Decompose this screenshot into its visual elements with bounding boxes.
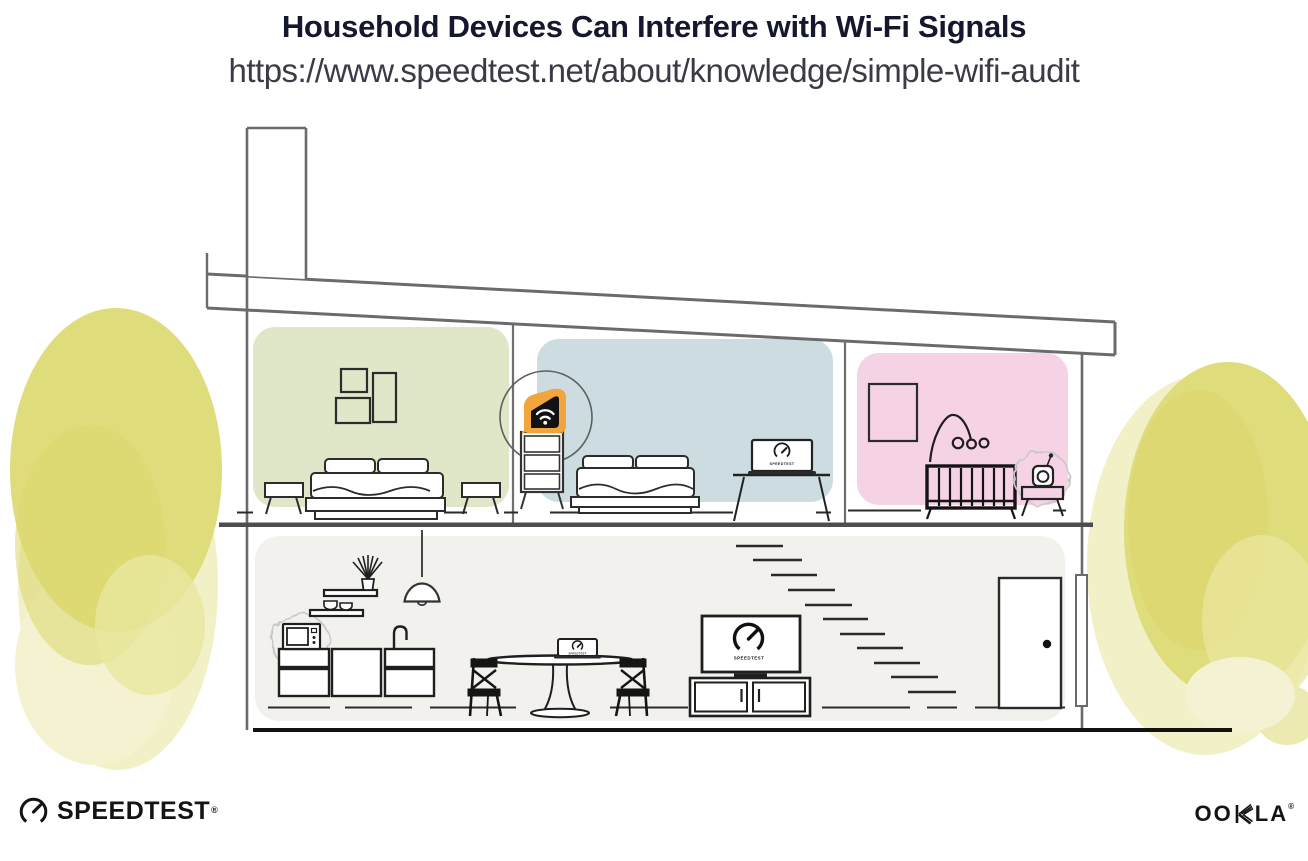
ookla-wordmark-right: LA bbox=[1255, 802, 1288, 826]
speedtest-logo: SPEEDTEST® bbox=[18, 796, 218, 827]
speedtest-gauge-icon bbox=[18, 796, 49, 827]
chimney bbox=[247, 128, 306, 279]
doorknob bbox=[1043, 640, 1051, 648]
microwave-icon bbox=[283, 624, 320, 649]
left-tree bbox=[10, 308, 222, 770]
speedtest-wordmark: SPEEDTEST bbox=[57, 797, 210, 825]
svg-text:SPEEDTEST: SPEEDTEST bbox=[770, 462, 795, 466]
ookla-logo: OO LA ® bbox=[1195, 802, 1294, 826]
right-tree bbox=[1087, 362, 1308, 755]
master-bed bbox=[306, 459, 445, 519]
kitchen-cabinets bbox=[279, 649, 434, 696]
ookla-k-icon bbox=[1234, 802, 1254, 826]
house-cross-section-illustration: SPEEDTEST bbox=[0, 0, 1308, 861]
floor-slab bbox=[219, 523, 1093, 528]
tv-icon: SPEEDTEST bbox=[702, 616, 800, 677]
laptop-icon: SPEEDTEST bbox=[554, 639, 601, 659]
wifi-router-icon bbox=[522, 389, 566, 433]
svg-text:SPEEDTEST: SPEEDTEST bbox=[568, 651, 586, 655]
front-door bbox=[999, 578, 1061, 708]
speedtest-trademark: ® bbox=[211, 805, 218, 815]
media-console bbox=[690, 678, 810, 716]
ookla-wordmark-left: OO bbox=[1195, 802, 1233, 826]
svg-text:SPEEDTEST: SPEEDTEST bbox=[734, 656, 765, 661]
downspout bbox=[1076, 575, 1087, 706]
ookla-trademark: ® bbox=[1288, 802, 1294, 811]
guest-bed bbox=[571, 456, 699, 513]
infographic-page: Household Devices Can Interfere with Wi-… bbox=[0, 0, 1308, 861]
laptop-icon: SPEEDTEST bbox=[748, 440, 816, 475]
